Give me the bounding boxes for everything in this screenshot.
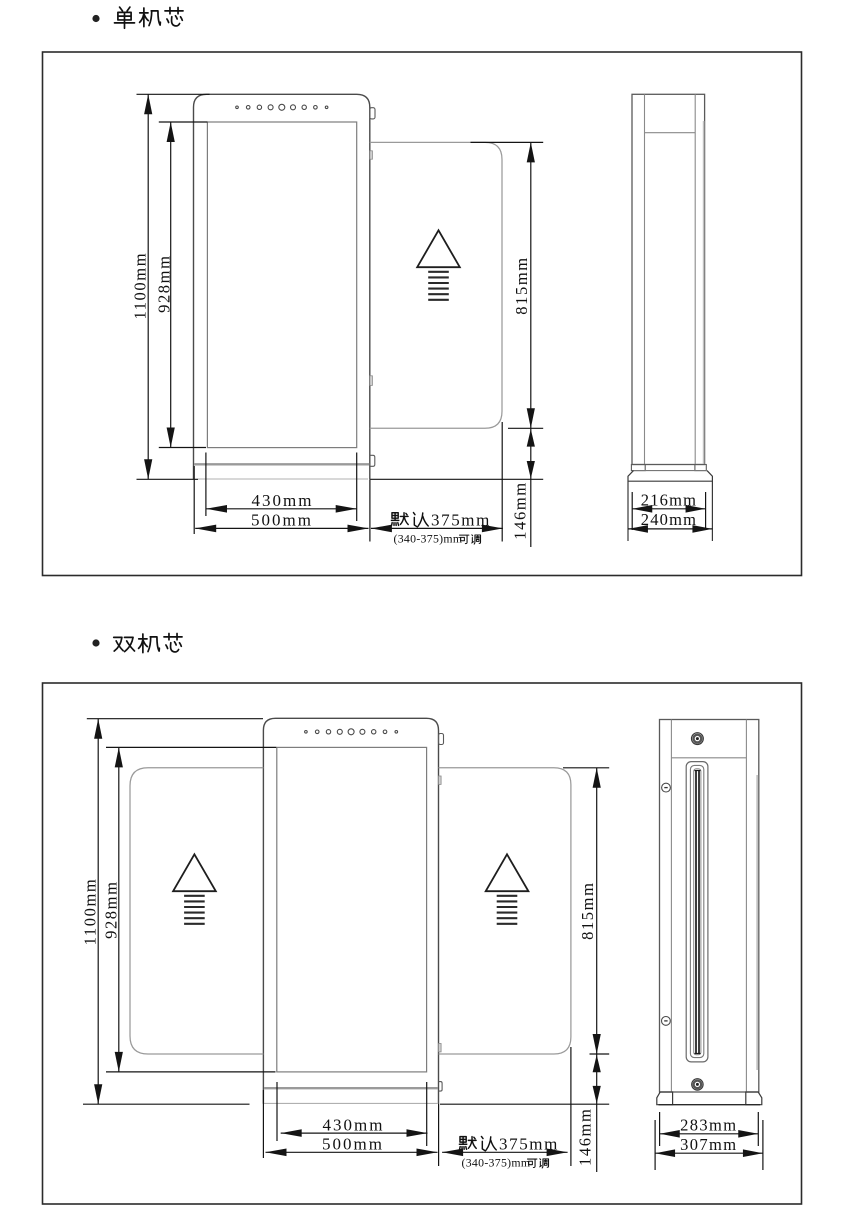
svg-text:430mm: 430mm bbox=[252, 491, 314, 510]
svg-text:1100mm: 1100mm bbox=[81, 878, 100, 946]
svg-text:928mm: 928mm bbox=[102, 880, 121, 938]
svg-text:815mm: 815mm bbox=[578, 881, 597, 939]
svg-text:430mm: 430mm bbox=[323, 1116, 385, 1135]
svg-text:815mm: 815mm bbox=[512, 256, 531, 314]
svg-text:375mm: 375mm bbox=[431, 510, 491, 529]
svg-text:(340-375)mm: (340-375)mm bbox=[394, 532, 463, 546]
svg-text:216mm: 216mm bbox=[641, 491, 697, 510]
svg-text:500mm: 500mm bbox=[322, 1135, 384, 1154]
svg-text:307mm: 307mm bbox=[680, 1135, 737, 1154]
svg-text:928mm: 928mm bbox=[155, 254, 174, 312]
svg-text:283mm: 283mm bbox=[680, 1115, 737, 1134]
svg-text:240mm: 240mm bbox=[641, 510, 697, 529]
svg-text:500mm: 500mm bbox=[251, 511, 313, 530]
svg-text:146mm: 146mm bbox=[510, 481, 529, 539]
svg-text:(340-375)mm: (340-375)mm bbox=[462, 1155, 531, 1169]
svg-text:146mm: 146mm bbox=[575, 1108, 594, 1166]
svg-text:375mm: 375mm bbox=[499, 1134, 559, 1153]
svg-text:1100mm: 1100mm bbox=[130, 252, 149, 320]
